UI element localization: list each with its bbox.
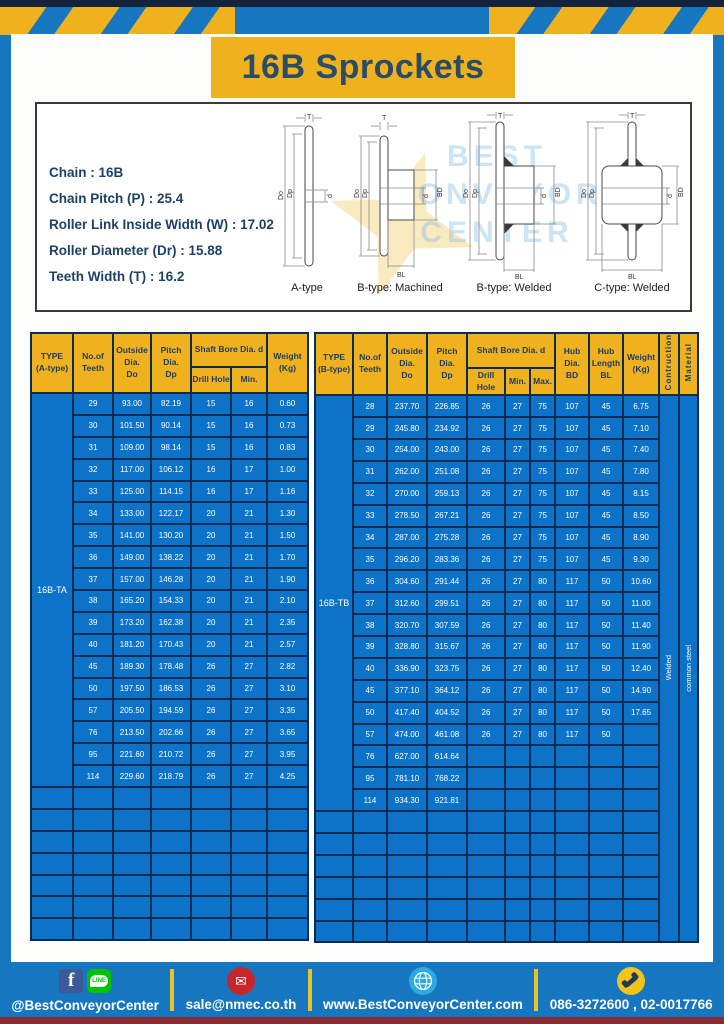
col-header-max: Max.	[530, 368, 555, 395]
table-cell: 7.40	[623, 439, 659, 461]
dim-dp: Dp	[472, 189, 479, 198]
table-cell	[73, 831, 113, 853]
dim-dp: Dp	[287, 189, 294, 198]
table-row: 36304.60291.442627801175010.60	[315, 570, 698, 592]
table-row: 34287.00275.28262775107458.90	[315, 527, 698, 549]
table-cell: 27	[505, 724, 530, 746]
table-cell	[427, 833, 467, 855]
table-cell: 26	[191, 743, 231, 765]
table-cell	[267, 875, 308, 897]
table-cell	[505, 767, 530, 789]
table-cell	[31, 809, 73, 831]
table-cell: 296.20	[387, 548, 427, 570]
footer: f LINE @BestConveyorCenter ✉ sale@nmec.c…	[0, 962, 724, 1017]
table-cell	[73, 787, 113, 809]
caution-stripes-right	[489, 7, 724, 35]
table-cell: 205.50	[113, 699, 151, 721]
facebook-letter: f	[68, 970, 74, 992]
table-cell: 7.10	[623, 417, 659, 439]
caution-stripes-left	[0, 7, 235, 35]
table-cell	[151, 809, 191, 831]
table-cell: 101.50	[113, 415, 151, 437]
table-cell	[505, 811, 530, 833]
envelope-glyph: ✉	[235, 973, 247, 990]
dim-d: d	[541, 194, 548, 198]
table-cell: 76	[353, 745, 387, 767]
table-cell	[530, 877, 555, 899]
table-cell: 26	[467, 636, 505, 658]
table-cell: 50	[589, 658, 623, 680]
table-cell: 162.38	[151, 612, 191, 634]
table-cell	[623, 833, 659, 855]
table-cell: 107	[555, 395, 589, 417]
table-cell	[467, 899, 505, 921]
table-cell: 259.13	[427, 483, 467, 505]
table-cell: 90.14	[151, 415, 191, 437]
dim-bl: BL	[628, 274, 637, 280]
table-cell	[555, 877, 589, 899]
table-cell: 336.90	[387, 658, 427, 680]
table-cell: 20	[191, 568, 231, 590]
table-cell	[589, 789, 623, 811]
table-cell	[315, 899, 353, 921]
table-cell: 26	[467, 461, 505, 483]
table-cell: 27	[231, 678, 267, 700]
table-cell: 213.50	[113, 721, 151, 743]
table-cell: 226.85	[427, 395, 467, 417]
material-cell: common steel	[679, 395, 698, 942]
table-cell	[467, 811, 505, 833]
table-cell	[31, 853, 73, 875]
email-address: sale@nmec.co.th	[186, 997, 297, 1012]
table-cell: 26	[467, 658, 505, 680]
table-cell: 20	[191, 590, 231, 612]
table-cell: 26	[191, 678, 231, 700]
col-header-material: Material	[679, 333, 698, 395]
table-cell: 173.20	[113, 612, 151, 634]
table-cell: 377.10	[387, 680, 427, 702]
table-row: 31109.0098.1415160.83	[31, 437, 308, 459]
table-cell: 107	[555, 483, 589, 505]
table-cell: 934.30	[387, 789, 427, 811]
table-cell: 80	[530, 614, 555, 636]
table-cell: 11.90	[623, 636, 659, 658]
table-cell: 1.90	[267, 568, 308, 590]
table-cell: 781.10	[387, 767, 427, 789]
table-cell: 27	[231, 721, 267, 743]
footer-email-group: ✉ sale@nmec.co.th	[186, 967, 297, 1012]
table-cell: 133.00	[113, 502, 151, 524]
col-header-weight: Weight (Kg)	[267, 333, 308, 393]
table-cell: 39	[353, 636, 387, 658]
table-cell: 27	[505, 614, 530, 636]
table-row: 36149.00138.2220211.70	[31, 546, 308, 568]
table-cell: 35	[353, 548, 387, 570]
dim-bl: BL	[397, 272, 406, 279]
table-cell	[113, 918, 151, 940]
table-cell	[530, 899, 555, 921]
diagram-caption: B-type: Machined	[357, 282, 443, 294]
table-cell	[315, 877, 353, 899]
table-cell: 312.60	[387, 592, 427, 614]
table-cell	[191, 918, 231, 940]
table-cell: 16	[231, 393, 267, 415]
col-header-teeth: No.of Teeth	[353, 333, 387, 395]
table-cell: 328.80	[387, 636, 427, 658]
spec-line: Teeth Width (T) : 16.2	[49, 264, 274, 290]
table-row: 32270.00259.13262775107458.15	[315, 483, 698, 505]
table-cell: 80	[530, 592, 555, 614]
table-cell: 36	[73, 546, 113, 568]
table-cell: 202.66	[151, 721, 191, 743]
table-cell: 9.30	[623, 548, 659, 570]
empty-row	[315, 921, 698, 943]
table-cell: 27	[505, 680, 530, 702]
table-cell: 16	[231, 437, 267, 459]
table-cell	[267, 896, 308, 918]
table-cell: 1.50	[267, 524, 308, 546]
footer-website-group: www.BestConveyorCenter.com	[323, 967, 523, 1012]
dim-bd: BD	[437, 187, 444, 197]
table-cell: 229.60	[113, 765, 151, 787]
b-type-welded-diagram: T Do Dp d	[462, 110, 566, 294]
col-header-pitch-dia: Pitch Dia. Dp	[427, 333, 467, 395]
table-cell: 27	[505, 592, 530, 614]
table-cell	[555, 745, 589, 767]
col-header-type: TYPE (B-type)	[315, 333, 353, 395]
table-row: 57474.00461.0826278011750	[315, 724, 698, 746]
table-cell: 80	[530, 658, 555, 680]
col-header-construction: Contruction	[659, 333, 679, 395]
table-cell: 27	[505, 527, 530, 549]
table-cell	[427, 921, 467, 943]
table-row: 39173.20162.3820212.35	[31, 612, 308, 634]
table-cell: 125.00	[113, 481, 151, 503]
table-row: 33278.50267.21262775107458.50	[315, 505, 698, 527]
type-label: 16B-TB	[315, 395, 353, 811]
table-cell: 32	[73, 459, 113, 481]
empty-row	[315, 855, 698, 877]
table-cell	[191, 831, 231, 853]
table-cell: 315.67	[427, 636, 467, 658]
table-cell: 26	[467, 702, 505, 724]
table-row: 114229.60218.7926274.25	[31, 765, 308, 787]
table-cell: 2.82	[267, 656, 308, 678]
table-cell: 75	[530, 395, 555, 417]
table-cell: 251.08	[427, 461, 467, 483]
table-cell: 27	[231, 699, 267, 721]
table-cell	[191, 809, 231, 831]
table-cell: 93.00	[113, 393, 151, 415]
table-cell: 0.83	[267, 437, 308, 459]
table-cell: 21	[231, 634, 267, 656]
table-cell: 82.19	[151, 393, 191, 415]
empty-row	[31, 787, 308, 809]
table-cell: 106.12	[151, 459, 191, 481]
col-header-shaft-bore: Shaft Bore Dia. d	[191, 333, 267, 367]
table-cell	[31, 831, 73, 853]
table-cell	[589, 899, 623, 921]
col-header-min: Min.	[505, 368, 530, 395]
table-cell: 117	[555, 702, 589, 724]
table-cell	[427, 899, 467, 921]
table-cell	[267, 787, 308, 809]
table-cell	[113, 831, 151, 853]
table-row: 30101.5090.1415160.73	[31, 415, 308, 437]
table-cell: 181.20	[113, 634, 151, 656]
table-cell	[467, 767, 505, 789]
table-cell: 8.90	[623, 527, 659, 549]
table-cell: 8.50	[623, 505, 659, 527]
table-cell: 221.60	[113, 743, 151, 765]
chain-specs: Chain : 16BChain Pitch (P) : 25.4Roller …	[49, 160, 274, 290]
table-cell: 16	[191, 481, 231, 503]
table-cell: 768.22	[427, 767, 467, 789]
table-cell	[151, 853, 191, 875]
table-cell	[505, 921, 530, 943]
table-cell: 29	[73, 393, 113, 415]
table-cell: 27	[505, 483, 530, 505]
table-cell: 39	[73, 612, 113, 634]
dim-d: d	[667, 194, 674, 198]
table-cell	[151, 831, 191, 853]
table-cell	[589, 921, 623, 943]
title-banner: 16B Sprockets	[211, 37, 515, 98]
dim-d: d	[327, 194, 334, 198]
spec-line: Chain Pitch (P) : 25.4	[49, 186, 274, 212]
table-cell: 20	[191, 502, 231, 524]
table-cell: 1.16	[267, 481, 308, 503]
table-cell: 130.20	[151, 524, 191, 546]
table-cell	[231, 831, 267, 853]
table-cell: 37	[353, 592, 387, 614]
table-cell: 45	[589, 439, 623, 461]
table-cell: 75	[530, 548, 555, 570]
empty-row	[31, 809, 308, 831]
dim-do: Do	[354, 189, 361, 198]
table-cell	[427, 877, 467, 899]
table-cell: 33	[353, 505, 387, 527]
table-row: 37312.60299.512627801175011.00	[315, 592, 698, 614]
table-cell: 45	[589, 505, 623, 527]
table-cell: 404.52	[427, 702, 467, 724]
col-header-teeth: No.of Teeth	[73, 333, 113, 393]
table-cell	[387, 811, 427, 833]
dim-bd: BD	[555, 187, 562, 197]
table-row: 35141.00130.2020211.50	[31, 524, 308, 546]
table-cell: 80	[530, 570, 555, 592]
table-cell	[530, 855, 555, 877]
table-cell	[31, 896, 73, 918]
footer-divider	[308, 969, 312, 1011]
table-cell: 138.22	[151, 546, 191, 568]
table-cell: 75	[530, 483, 555, 505]
table-cell: 117	[555, 614, 589, 636]
a-type-diagram: T Do Dp d A-type	[276, 110, 338, 294]
table-cell	[31, 918, 73, 940]
table-cell	[73, 896, 113, 918]
table-cell	[231, 809, 267, 831]
table-cell	[387, 899, 427, 921]
table-cell	[315, 811, 353, 833]
table-row: 16B-TB28237.70226.85262775107456.75Welde…	[315, 395, 698, 417]
table-cell: 75	[530, 461, 555, 483]
table-row: 37157.00146.2820211.90	[31, 568, 308, 590]
table-cell: 170.43	[151, 634, 191, 656]
table-cell: 45	[589, 395, 623, 417]
table-row: 31262.00251.08262775107457.80	[315, 461, 698, 483]
table-cell: 30	[73, 415, 113, 437]
table-cell: 45	[589, 483, 623, 505]
table-cell: 4.25	[267, 765, 308, 787]
table-cell: 50	[353, 702, 387, 724]
dim-dp: Dp	[589, 189, 596, 198]
table-cell: 15	[191, 415, 231, 437]
table-cell	[623, 877, 659, 899]
table-cell: 38	[353, 614, 387, 636]
table-cell: 75	[530, 439, 555, 461]
table-cell	[231, 787, 267, 809]
table-cell: 16	[231, 415, 267, 437]
table-row: 95221.60210.7226273.95	[31, 743, 308, 765]
table-row: 50417.40404.522627801175017.65	[315, 702, 698, 724]
table-cell: 15	[191, 437, 231, 459]
table-cell	[505, 789, 530, 811]
table-cell: 40	[73, 634, 113, 656]
table-row: 35296.20283.36262775107459.30	[315, 548, 698, 570]
table-cell: 323.75	[427, 658, 467, 680]
table-cell: 114	[353, 789, 387, 811]
table-cell: 38	[73, 590, 113, 612]
table-cell	[191, 896, 231, 918]
table-cell: 364.12	[427, 680, 467, 702]
table-cell: 26	[467, 395, 505, 417]
table-cell	[73, 918, 113, 940]
table-cell: 304.60	[387, 570, 427, 592]
table-cell	[267, 831, 308, 853]
table-cell: 33	[73, 481, 113, 503]
dim-bl: BL	[515, 274, 524, 280]
table-cell	[267, 853, 308, 875]
table-cell: 16	[191, 459, 231, 481]
content-panel: 16B Sprockets BEST CONVEYOR CENTER Chain…	[11, 34, 713, 962]
empty-row	[315, 811, 698, 833]
table-cell: 26	[467, 439, 505, 461]
diagram-caption: A-type	[291, 282, 323, 294]
table-cell: 107	[555, 417, 589, 439]
table-cell: 27	[505, 439, 530, 461]
table-cell: 165.20	[113, 590, 151, 612]
table-cell: 107	[555, 548, 589, 570]
table-cell: 29	[353, 417, 387, 439]
table-cell: 2.35	[267, 612, 308, 634]
table-cell	[353, 921, 387, 943]
table-cell: 45	[589, 417, 623, 439]
table-cell	[505, 877, 530, 899]
table-cell	[31, 875, 73, 897]
table-cell: 7.80	[623, 461, 659, 483]
table-cell: 1.00	[267, 459, 308, 481]
table-cell: 243.00	[427, 439, 467, 461]
table-row: 76627.00614.64	[315, 745, 698, 767]
dim-t: T	[498, 113, 503, 120]
table-cell: 20	[191, 546, 231, 568]
footer-divider	[534, 969, 538, 1011]
table-cell: 27	[505, 658, 530, 680]
c-type-welded-drawing: T Do Dp d	[580, 110, 684, 280]
table-cell: 50	[589, 592, 623, 614]
table-cell	[555, 811, 589, 833]
table-cell: 20	[191, 524, 231, 546]
c-type-welded-diagram: T Do Dp d	[580, 110, 684, 294]
table-cell	[530, 833, 555, 855]
empty-row	[31, 831, 308, 853]
table-row: 34133.00122.1720211.30	[31, 502, 308, 524]
table-cell: 2.57	[267, 634, 308, 656]
table-cell: 237.70	[387, 395, 427, 417]
table-cell: 149.00	[113, 546, 151, 568]
table-row: 32117.00106.1216171.00	[31, 459, 308, 481]
diagram-caption: C-type: Welded	[594, 282, 670, 294]
table-cell	[151, 787, 191, 809]
table-cell	[589, 855, 623, 877]
table-cell: 27	[505, 636, 530, 658]
table-row: 39328.80315.672627801175011.90	[315, 636, 698, 658]
table-cell: 186.53	[151, 678, 191, 700]
table-cell	[505, 833, 530, 855]
empty-row	[31, 896, 308, 918]
table-cell: 3.35	[267, 699, 308, 721]
dim-t: T	[307, 114, 312, 121]
table-cell: 154.33	[151, 590, 191, 612]
table-cell	[231, 918, 267, 940]
table-cell	[231, 875, 267, 897]
table-cell	[530, 811, 555, 833]
table-cell	[467, 877, 505, 899]
col-header-type: TYPE (A-type)	[31, 333, 73, 393]
b-type-machined-diagram: T Do Dp d	[352, 110, 448, 294]
table-cell: 27	[231, 743, 267, 765]
table-cell	[623, 767, 659, 789]
table-cell: 45	[353, 680, 387, 702]
table-cell: 26	[191, 765, 231, 787]
construction-cell: Welded	[659, 395, 679, 942]
footer-social-group: f LINE @BestConveyorCenter	[11, 966, 158, 1013]
table-cell: 26	[191, 699, 231, 721]
empty-row	[31, 875, 308, 897]
col-header-min: Min.	[231, 367, 267, 393]
table-cell	[151, 918, 191, 940]
table-cell	[267, 918, 308, 940]
bottom-maroon-strip	[0, 1017, 724, 1024]
table-cell: 27	[505, 461, 530, 483]
table-a-body: 16B-TA2993.0082.1915160.6030101.5090.141…	[31, 393, 308, 940]
table-cell: 26	[467, 417, 505, 439]
table-cell: 35	[73, 524, 113, 546]
table-row: 38165.20154.3320212.10	[31, 590, 308, 612]
col-header-outside-dia: Outside Dia. Do	[113, 333, 151, 393]
table-cell	[353, 855, 387, 877]
table-cell: 283.36	[427, 548, 467, 570]
table-cell: 26	[467, 505, 505, 527]
table-cell: 3.10	[267, 678, 308, 700]
table-cell: 45	[589, 461, 623, 483]
table-row: 76213.50202.6626273.65	[31, 721, 308, 743]
table-cell: 45	[73, 656, 113, 678]
table-cell: 109.00	[113, 437, 151, 459]
table-row: 45377.10364.122627801175014.90	[315, 680, 698, 702]
table-cell	[555, 855, 589, 877]
